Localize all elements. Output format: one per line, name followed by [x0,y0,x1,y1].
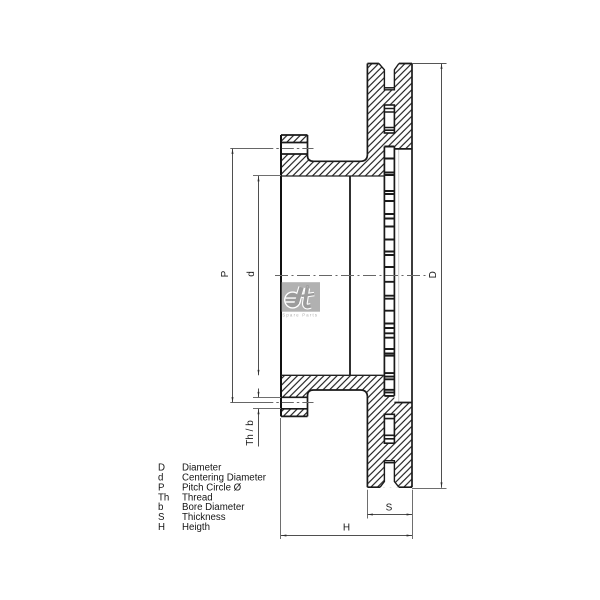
svg-text:D: D [428,271,439,278]
svg-text:P: P [220,270,231,277]
svg-text:d: d [246,271,257,277]
svg-text:Heigth: Heigth [182,522,210,533]
svg-text:S: S [386,503,393,514]
svg-text:Spare Parts: Spare Parts [282,312,318,317]
svg-text:H: H [343,523,350,534]
svg-text:H: H [158,522,165,533]
svg-text:Th / b: Th / b [245,420,256,446]
